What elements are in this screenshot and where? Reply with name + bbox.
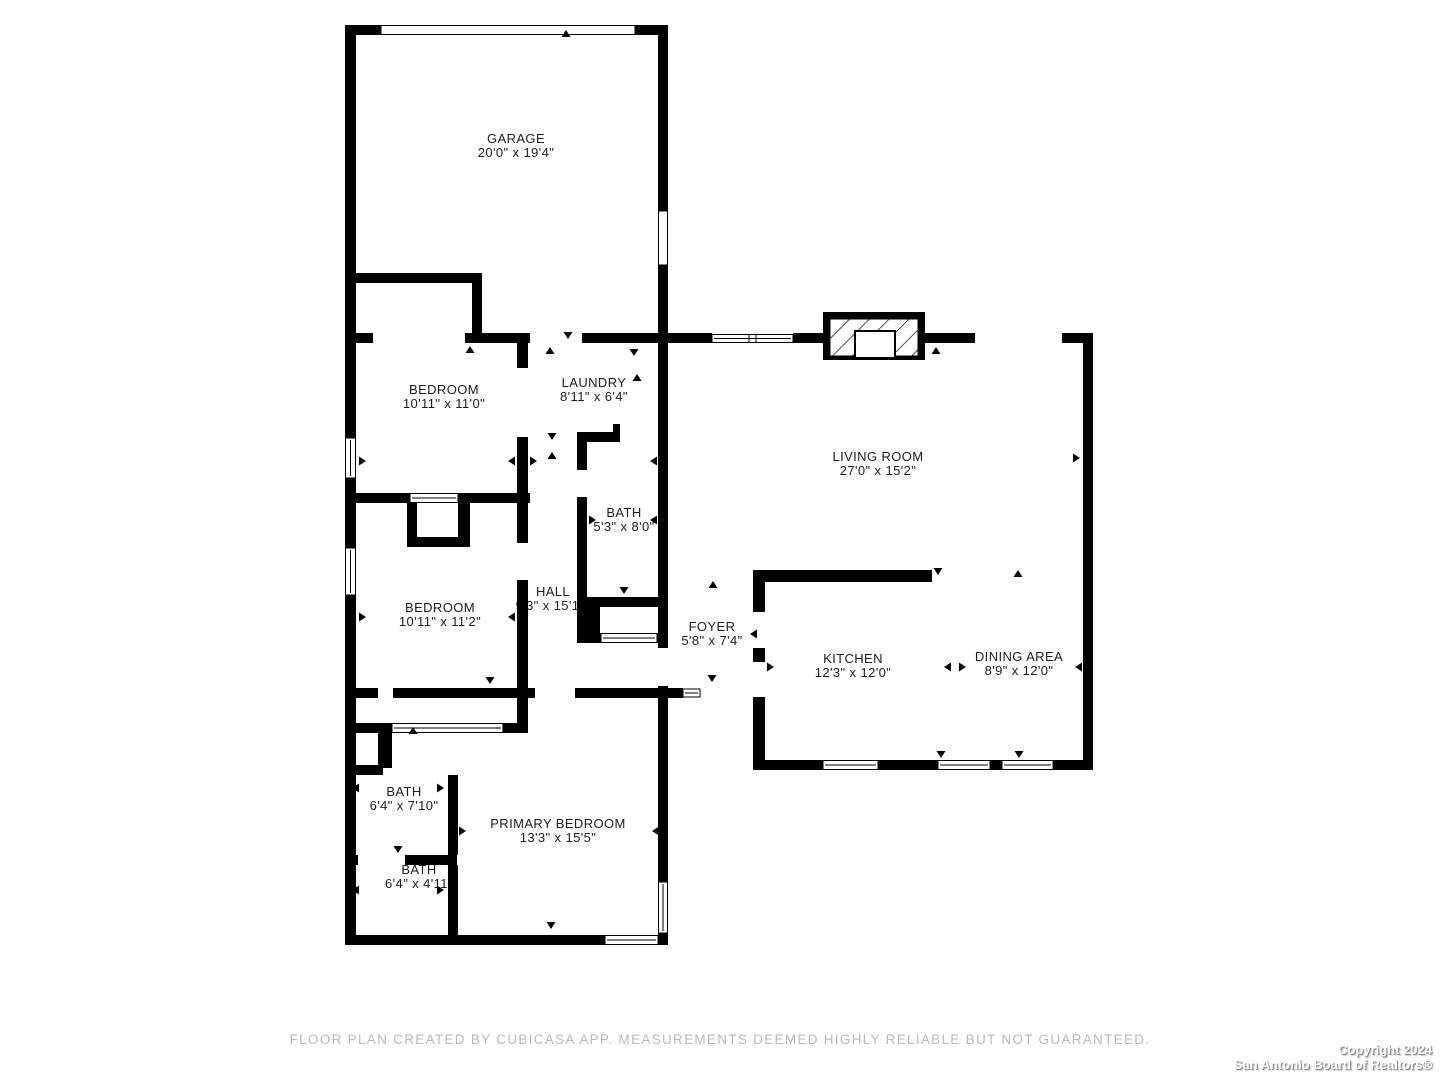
kitchen-window	[823, 761, 878, 770]
room-label-primary-bedroom: PRIMARY BEDROOM 13'3" x 15'5"	[490, 816, 626, 845]
room-label-garage: GARAGE 20'0" x 19'4"	[478, 131, 555, 160]
room-label-laundry: LAUNDRY 8'11" x 6'4"	[560, 375, 628, 404]
floor-plan-page: GARAGE 20'0" x 19'4" BEDROOM 10'11" x 11…	[0, 0, 1440, 1080]
room-label-bath-hall: BATH 5'3" x 8'0"	[593, 505, 654, 534]
room-label-foyer: FOYER 5'8" x 7'4"	[681, 619, 742, 648]
door-direction-markers	[348, 30, 1082, 929]
copyright-line1: Copyright 2024	[1234, 1042, 1432, 1057]
svg-text:LAUNDRY: LAUNDRY	[562, 375, 627, 390]
svg-text:5'8" x 7'4": 5'8" x 7'4"	[681, 633, 742, 648]
svg-text:12'3" x 12'0": 12'3" x 12'0"	[815, 665, 892, 680]
svg-text:27'0" x 15'2": 27'0" x 15'2"	[840, 463, 917, 478]
svg-text:GARAGE: GARAGE	[487, 131, 545, 146]
fireplace-icon	[823, 312, 925, 360]
bedroom-top-window	[346, 438, 356, 478]
svg-text:KITCHEN: KITCHEN	[823, 651, 883, 666]
room-labels: GARAGE 20'0" x 19'4" BEDROOM 10'11" x 11…	[370, 131, 1064, 891]
garage-service-door	[659, 211, 668, 265]
svg-text:HALL: HALL	[536, 584, 570, 599]
bedroom-mid-window	[346, 548, 356, 595]
svg-text:FOYER: FOYER	[689, 619, 736, 634]
bedroom-closet-door	[410, 494, 458, 503]
room-label-dining: DINING AREA 8'9" x 12'0"	[975, 649, 1063, 678]
room-label-living-room: LIVING ROOM 27'0" x 15'2"	[832, 449, 923, 478]
garage-door-symbol	[381, 26, 635, 35]
svg-text:DINING AREA: DINING AREA	[975, 649, 1063, 664]
primary-bedroom-side-window	[659, 882, 668, 933]
living-room-window	[712, 335, 793, 343]
svg-text:6'4" x 7'10": 6'4" x 7'10"	[370, 798, 439, 813]
svg-text:5'3" x 8'0": 5'3" x 8'0"	[593, 519, 654, 534]
primary-closet-slider-door	[392, 724, 503, 733]
primary-bedroom-bottom-window	[605, 936, 658, 945]
foyer-window	[683, 689, 700, 697]
svg-text:10'11" x 11'0": 10'11" x 11'0"	[403, 396, 485, 411]
foyer-closet-door	[601, 634, 657, 643]
dining-window-left	[938, 761, 990, 770]
room-label-bedroom-mid: BEDROOM 10'11" x 11'2"	[399, 600, 481, 629]
svg-text:BATH: BATH	[606, 505, 641, 520]
svg-text:8'9" x 12'0": 8'9" x 12'0"	[985, 663, 1054, 678]
dining-window-right	[1002, 761, 1053, 770]
svg-text:BEDROOM: BEDROOM	[405, 600, 475, 615]
svg-text:BATH: BATH	[386, 784, 421, 799]
svg-text:13'3" x 15'5": 13'3" x 15'5"	[520, 830, 597, 845]
svg-text:LIVING ROOM: LIVING ROOM	[832, 449, 923, 464]
copyright-line2: San Antonio Board of Realtors®	[1234, 1057, 1432, 1072]
disclaimer-text: FLOOR PLAN CREATED BY CUBICASA APP. MEAS…	[0, 1032, 1440, 1047]
room-label-kitchen: KITCHEN 12'3" x 12'0"	[815, 651, 892, 680]
copyright-watermark: Copyright 2024 San Antonio Board of Real…	[1234, 1042, 1432, 1072]
room-label-bath-small: BATH 6'4" x 4'11"	[385, 862, 453, 891]
svg-text:8'11" x 6'4": 8'11" x 6'4"	[560, 389, 628, 404]
svg-text:20'0" x 19'4": 20'0" x 19'4"	[478, 145, 555, 160]
floor-plan-drawing: GARAGE 20'0" x 19'4" BEDROOM 10'11" x 11…	[0, 0, 1440, 1080]
room-label-bath-primary: BATH 6'4" x 7'10"	[370, 784, 439, 813]
svg-text:PRIMARY BEDROOM: PRIMARY BEDROOM	[490, 816, 626, 831]
svg-text:10'11" x 11'2": 10'11" x 11'2"	[399, 614, 481, 629]
room-label-bedroom-top: BEDROOM 10'11" x 11'0"	[403, 382, 485, 411]
svg-text:6'4" x 4'11": 6'4" x 4'11"	[385, 876, 453, 891]
walls	[345, 25, 1093, 945]
svg-text:BEDROOM: BEDROOM	[409, 382, 479, 397]
